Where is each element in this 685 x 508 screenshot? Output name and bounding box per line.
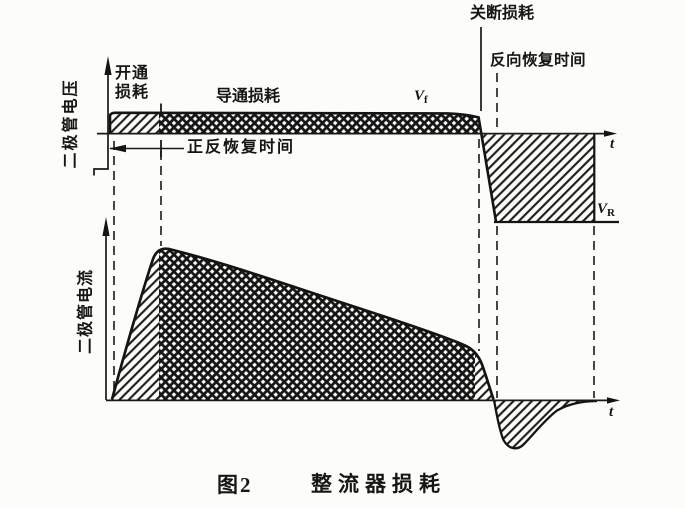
reverse-recovery-dip-region [494,400,597,448]
conduction-loss-label: 导通损耗 [216,88,280,107]
voltage-axis-label: 二极管电压 [63,75,82,171]
current-axis-label: 二极管电流 [78,268,97,354]
forward-recovery-arrowhead [109,145,126,153]
figure-caption-number: 图2 [217,469,253,499]
turn-off-loss-label: 关断损耗 [470,5,534,24]
reverse-recovery-time-label: 反向恢复时间 [490,52,586,70]
figure-canvas: 二极管电压 二极管电流 开通损耗 导通损耗 Vf 关断损耗 反向恢复时间 正反恢… [0,0,685,508]
figure-caption-title: 整流器损耗 [311,468,446,498]
voltage-time-axis-label: t [610,136,614,154]
turn-off-loss-region [482,135,595,222]
waveform-diagram [0,0,685,508]
forward-recovery-time-label: 正反恢复时间 [187,139,295,158]
current-time-axis-label: t [609,404,613,422]
turn-on-loss-label: 开通损耗 [115,65,155,103]
current-body-region [159,240,475,405]
current-waveform [100,240,597,448]
vr-label: VR [597,201,615,220]
voltage-waveform [108,110,619,222]
voltage-y-axis [94,61,109,176]
vf-label: Vf [414,88,428,107]
